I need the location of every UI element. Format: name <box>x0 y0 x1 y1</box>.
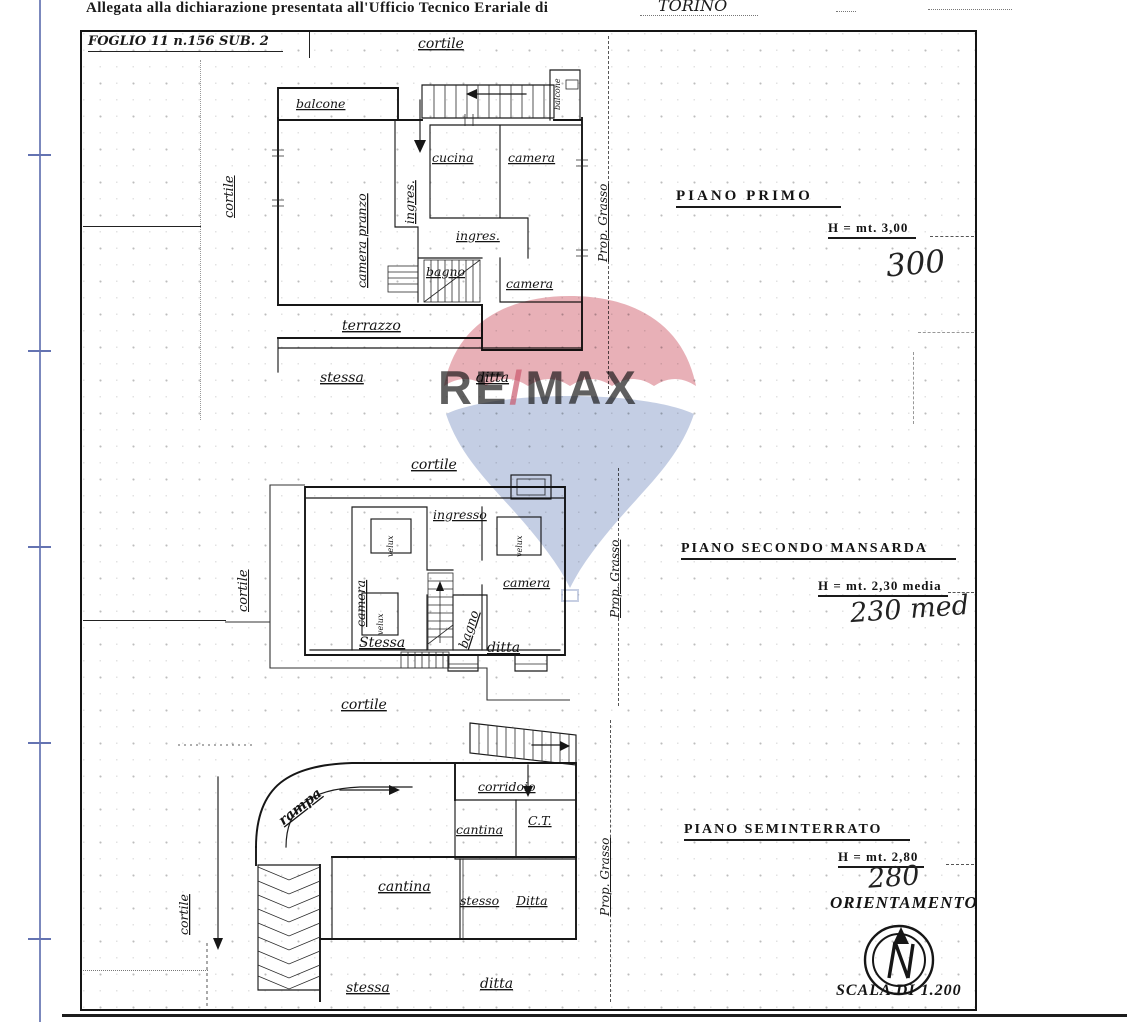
area-label-stessa: Stessa <box>359 635 405 651</box>
room-label-cortile-bottom: cortile <box>341 697 387 713</box>
orientation-title: ORIENTAMENTO <box>830 893 978 913</box>
room-label-terrazzo: terrazzo <box>342 318 401 334</box>
boundary-line <box>83 226 201 227</box>
room-label-corridoio: corridoio <box>478 779 536 794</box>
room-label-cucina: cucina <box>432 150 474 165</box>
room-label-bagno: bagno <box>426 264 465 279</box>
area-label-stessa: stessa <box>320 370 364 386</box>
dotted-fill-line <box>640 15 758 16</box>
scanned-cadastral-plan-page: Allegata alla dichiarazione presentata a… <box>0 0 1127 1022</box>
boundary-dotted-line <box>200 60 201 420</box>
room-label-camera-pranzo: camera pranzo <box>354 193 369 288</box>
room-label-camera: camera <box>508 150 555 165</box>
room-label-cantina-small: cantina <box>456 822 503 837</box>
dotted-fill-line <box>836 11 856 12</box>
boundary-line <box>83 620 226 621</box>
velux-label: velux <box>376 613 385 635</box>
room-label-balcone: balcone <box>296 96 345 111</box>
area-label-stesso: stesso <box>460 893 499 908</box>
city-handwritten: TORINO <box>658 0 727 15</box>
declaration-heading: Allegata alla dichiarazione presentata a… <box>86 0 548 17</box>
courtyard-label-left-p2: cortile <box>236 569 251 612</box>
dotted-fill-line <box>928 9 1012 10</box>
foglio-reference: FOGLIO 11 n.156 SUB. 2 <box>88 34 283 52</box>
north-letter <box>889 942 913 978</box>
external-stair <box>422 85 554 118</box>
plan-title-seminterrato: PIANO SEMINTERRATO <box>684 822 910 841</box>
plan-title-secondo: PIANO SECONDO MANSARDA <box>681 541 956 560</box>
note-dash-extension <box>946 864 974 865</box>
room-label-ct: C.T. <box>528 813 552 828</box>
plan-title-primo: PIANO PRIMO <box>676 188 841 208</box>
room-label-ingres-hall: ingres. <box>456 228 500 243</box>
height-handwritten-p1: 300 <box>885 243 947 284</box>
watermark-brand-text: RE/MAX <box>438 361 639 414</box>
room-label-cortile-top: cortile <box>418 36 464 52</box>
owner-label-p3: Prop. Grasso <box>598 838 612 916</box>
ruler-tick <box>28 938 51 940</box>
note-dash-extension <box>930 236 974 237</box>
room-label-bagno: bagno <box>455 608 481 650</box>
area-label-ditta: ditta <box>487 640 520 656</box>
height-handwritten-p3: 280 <box>867 860 921 895</box>
area-label-ditta-bottom: ditta <box>480 976 513 992</box>
courtyard-label-left-p3: cortile <box>176 894 191 935</box>
balloon-bottom-icon <box>446 396 694 588</box>
area-label-stessa-bottom: stessa <box>346 980 390 996</box>
area-label-ditta-small: Ditta <box>515 893 548 908</box>
ruler-tick <box>28 154 51 156</box>
ruler-tick <box>28 742 51 744</box>
scale-note: SCALA DI 1.200 <box>836 982 962 1000</box>
room-label-cantina-large: cantina <box>378 879 431 895</box>
grid-dash-mark <box>918 332 974 333</box>
owner-label-p1: Prop. Grasso <box>596 184 610 262</box>
ruler-tick <box>28 546 51 548</box>
room-label-balcone-right: balcone <box>553 78 562 110</box>
room-label-camera-left: camera <box>353 580 368 627</box>
height-note-p1: H = mt. 3,00 <box>828 220 916 239</box>
velux-label: velux <box>386 535 395 557</box>
ruler-tick <box>28 350 51 352</box>
room-label-rampa: rampa <box>276 785 325 828</box>
room-label-ingres: ingres. <box>402 180 417 224</box>
balloon-basket-icon <box>562 590 578 601</box>
remax-watermark: RE/MAX <box>428 278 712 608</box>
plan-seminterrato-drawing: rampa corridoio cantina C.T. cantina ste… <box>160 715 600 1015</box>
grid-dash-mark <box>913 352 914 424</box>
courtyard-label-left-p1: cortile <box>222 175 237 218</box>
